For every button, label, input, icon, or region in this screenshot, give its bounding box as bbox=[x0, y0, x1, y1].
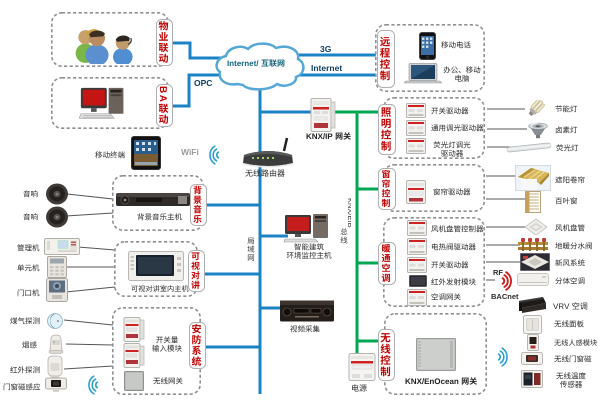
svg-text:KNX/EIB: KNX/EIB bbox=[346, 198, 351, 228]
